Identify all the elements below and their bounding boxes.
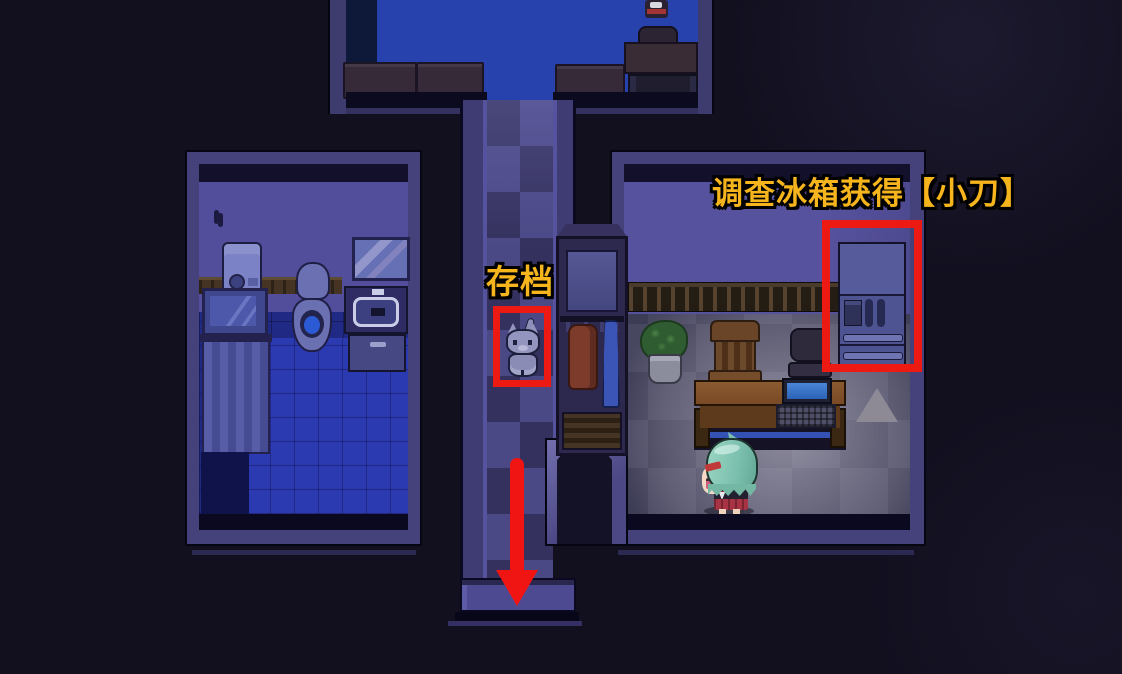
living-room-wall-bottom-band bbox=[624, 514, 910, 530]
save-label: 存档 bbox=[486, 265, 554, 298]
fridge-hint-label: 调查冰箱获得【小刀】 bbox=[712, 179, 1032, 210]
bathtub bbox=[202, 288, 268, 336]
curtain-rod bbox=[200, 334, 272, 342]
bathroom-wall-top-band bbox=[199, 164, 408, 182]
top-room-shadow-strip bbox=[346, 0, 377, 62]
sink-faucet bbox=[372, 289, 384, 295]
curtain-shadow bbox=[201, 452, 249, 514]
game-scene: 存档 调查冰箱获得【小刀】 bbox=[0, 0, 1122, 674]
corridor-wall-left bbox=[460, 100, 487, 612]
small-figure-white bbox=[650, 2, 662, 8]
fridge-highlight-box bbox=[822, 220, 922, 372]
cabinet-handle bbox=[370, 342, 386, 347]
toilet-tank bbox=[296, 262, 330, 300]
living-room-under-line bbox=[618, 550, 914, 555]
top-room-desk bbox=[624, 42, 698, 74]
shower-curtain bbox=[202, 342, 270, 454]
triangle-marker bbox=[856, 388, 898, 422]
laptop-screen bbox=[782, 378, 832, 404]
down-arrow-shaft bbox=[510, 458, 524, 574]
washer-panel bbox=[248, 278, 258, 286]
wall-shelf bbox=[628, 282, 840, 312]
sink-basin bbox=[353, 297, 399, 327]
chair-backtop bbox=[710, 320, 760, 342]
wall-mirror bbox=[352, 237, 410, 281]
wall-hook-icon bbox=[214, 210, 219, 224]
laptop-screen-display bbox=[787, 383, 827, 399]
sink-drain bbox=[371, 308, 385, 316]
bathroom-wall-bottom-band bbox=[199, 514, 408, 530]
toilet-water bbox=[304, 316, 320, 334]
top-room-border-right bbox=[698, 0, 714, 114]
laptop-keyboard bbox=[776, 404, 836, 428]
entry-doorway bbox=[557, 452, 612, 544]
corridor-end-line bbox=[448, 621, 582, 626]
chair-slats bbox=[714, 340, 756, 374]
potted-plant bbox=[640, 320, 688, 386]
coat-stand-slats bbox=[562, 412, 622, 450]
small-figure bbox=[645, 0, 668, 18]
red-coat bbox=[568, 324, 598, 390]
bathroom-under-line bbox=[192, 550, 416, 555]
coat-stand-mirror bbox=[566, 250, 618, 312]
corridor-end-shadow bbox=[455, 612, 579, 621]
sink-cabinet bbox=[348, 334, 406, 372]
coat-stand bbox=[556, 224, 628, 456]
coat-hook-3 bbox=[600, 322, 604, 332]
plant-pot bbox=[648, 354, 682, 384]
toilet-bowl bbox=[292, 298, 332, 352]
down-arrow-head bbox=[496, 570, 538, 606]
laptop bbox=[776, 378, 836, 428]
small-figure-red bbox=[647, 9, 666, 14]
save-highlight-box bbox=[493, 306, 551, 387]
sink-counter bbox=[344, 286, 408, 334]
player-character bbox=[698, 436, 762, 516]
bathtub-water bbox=[210, 296, 256, 326]
